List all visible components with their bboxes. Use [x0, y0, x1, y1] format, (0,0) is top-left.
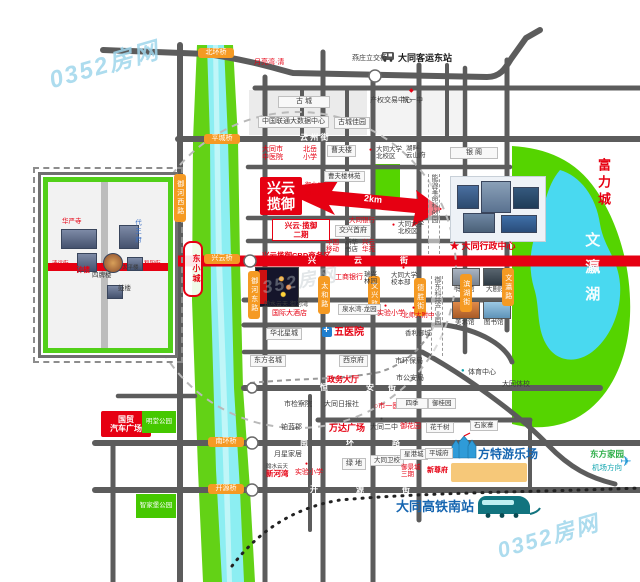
- map-label: 市公安局: [396, 375, 424, 383]
- map-label: 御桂园: [428, 398, 456, 409]
- map-label: 开: [310, 485, 318, 494]
- map-label: 实验小学: [295, 469, 323, 477]
- map-label: 大同卫校: [370, 455, 404, 466]
- map-label: 兴云 华苑: [362, 239, 375, 254]
- map-label: 清远街: [52, 261, 69, 267]
- map-label: 曹夫楼: [327, 145, 356, 157]
- map-label: 街: [400, 256, 408, 265]
- map-label: 大同大学 北校区: [398, 221, 424, 236]
- lake-label: 文瀛湖: [583, 232, 600, 313]
- admin-center-buildings: [450, 176, 546, 242]
- poi-dot-icon: ●: [369, 148, 372, 154]
- distance-label: 2km: [364, 193, 383, 205]
- map-label: 云: [354, 256, 362, 265]
- map-label: 星港城: [400, 449, 428, 460]
- project-phase2: 兴云·揽御 二期: [272, 219, 330, 241]
- hsr-station-label: 大同高铁南站: [396, 500, 474, 515]
- map-label: 四牌楼: [92, 272, 112, 279]
- map-label: 东方名城: [250, 355, 286, 367]
- map-label: 新河湾: [266, 470, 289, 479]
- road-tag: 御河西路: [174, 174, 186, 222]
- poi-dot-icon: ●: [392, 223, 395, 229]
- sipailou-icon: [103, 253, 123, 273]
- map-label: 国际大酒店: [272, 310, 307, 318]
- map-label: 太平楼: [122, 265, 139, 271]
- map-label: 万达广场: [329, 423, 365, 433]
- map-label: 南: [300, 438, 308, 447]
- map-label: 大同大学 北校区: [376, 146, 402, 161]
- sport-icon: ●: [461, 368, 465, 375]
- huayan-temple-icon: [61, 229, 97, 249]
- map-label: 大同大学 校本部: [391, 272, 417, 287]
- map-label: 街: [402, 485, 410, 494]
- map-label: 花千树: [426, 422, 454, 433]
- map-label: 智家堡公园: [136, 494, 176, 518]
- map-label: 华北星城: [266, 328, 302, 340]
- map-label: 御河苑: [305, 192, 323, 199]
- road-tag: 文瀛路: [502, 268, 514, 306]
- poi-dot-icon: ●: [380, 417, 383, 423]
- poi-dot-icon: ●: [402, 266, 405, 272]
- admin-center-label: ★ 大同行政中心: [450, 241, 516, 251]
- map-label: 古 城: [278, 96, 330, 108]
- map-label: 东小城: [183, 241, 203, 297]
- map-label: 华严寺: [62, 218, 82, 225]
- map-label: 工商银行: [335, 274, 363, 282]
- map-label: 富力城: [595, 158, 610, 209]
- map-label: 曹夫楼林苑: [324, 171, 365, 182]
- map-label: 铂蓝郡: [281, 424, 302, 432]
- fantawild-label: 方特游乐场: [478, 448, 538, 462]
- map-label: 燕庄立交桥: [352, 55, 387, 63]
- map-label: 西京府: [339, 355, 368, 367]
- map-label: 钟楼: [76, 267, 90, 275]
- map-label: 图书馆: [484, 319, 504, 326]
- bridge-tag: 开源桥: [208, 484, 244, 494]
- hospital-cross-icon: [322, 327, 332, 337]
- map-label: 美术馆: [455, 319, 475, 326]
- project-cbd: 兴云揽御CBD商务区: [262, 252, 331, 261]
- map-label: 御水公元: [305, 183, 329, 190]
- map-label: 绿 地: [342, 458, 366, 470]
- map-label: 市检察院: [284, 401, 312, 409]
- map-label: 新华 书店: [345, 239, 358, 254]
- road-tag: 滨湖街: [460, 274, 472, 312]
- poi-dot-icon: ●: [384, 304, 387, 310]
- project-block: 兴云 揽御: [260, 177, 302, 215]
- road-tag: 太和路: [318, 276, 330, 314]
- map-label: 铁一中: [402, 97, 423, 105]
- bridge-tag: 平城桥: [204, 134, 240, 144]
- map-label: 月亮湾·清: [254, 59, 284, 67]
- map-label: 大同银行: [349, 217, 375, 224]
- map-label: 安: [366, 383, 374, 392]
- map-label: 古城佳园: [334, 117, 370, 129]
- map-label: 实验小学: [377, 310, 405, 318]
- bus-station-label: 大同客运东站: [398, 53, 452, 63]
- map-label: 能源革命科创园: [428, 174, 440, 254]
- map-label: 北岳 小学: [303, 146, 317, 162]
- map-label: 街: [388, 383, 396, 392]
- map-label: 新尊府: [427, 467, 448, 475]
- bridge-tag: 南环桥: [208, 437, 244, 447]
- map-label: 恒: [320, 383, 328, 392]
- map-label: 中国 移动: [326, 239, 339, 254]
- fantawild-area-block: [451, 463, 527, 482]
- map-label: 机场方向: [592, 464, 622, 473]
- map-label: 明堂公园: [142, 411, 176, 433]
- map-label: 和阳街: [144, 261, 161, 267]
- poi-dot-icon: ●: [305, 462, 308, 468]
- map-label: 石家寨: [470, 420, 498, 431]
- bridge-tag: 北环桥: [198, 48, 234, 58]
- map-label: 大同日报社: [324, 401, 359, 409]
- castle-icon: [452, 433, 476, 458]
- map-label: 翰水云天·御河湾: [264, 302, 308, 309]
- map-label: 交兴首府: [335, 225, 371, 237]
- map-label: 平城府: [425, 448, 453, 459]
- map-label: 大同二中: [370, 424, 398, 432]
- map-label: 路: [392, 438, 400, 447]
- poi-dot-icon: ●: [412, 306, 415, 312]
- road-name-yunzhou: 云 州 街: [300, 133, 328, 142]
- plane-icon: ✈: [620, 453, 632, 469]
- road-tag: 御河东路: [248, 271, 260, 319]
- map-label: 鼓楼: [118, 285, 131, 292]
- map-label: 泉水湾·龙园: [338, 304, 381, 315]
- school-icon: ◆: [409, 88, 414, 95]
- map-label: 五医院: [334, 327, 364, 339]
- map-label: 体育中心: [468, 369, 496, 377]
- map-label: 湖畔· 云山府: [406, 145, 426, 160]
- map-label: 香利御城: [405, 330, 431, 337]
- map-label: 北师大附中: [402, 312, 435, 319]
- map-label: 御景城 三期: [401, 464, 421, 479]
- map-label: 政务大厅: [327, 375, 359, 384]
- map-label: 东方家园: [590, 450, 624, 460]
- map-label: 源: [356, 485, 364, 494]
- map-label: 银 阁: [450, 147, 498, 159]
- map-label: 兴: [308, 256, 316, 265]
- map-label: 市环保局: [395, 358, 423, 366]
- train-icon: [478, 496, 540, 518]
- map-label: 环: [346, 438, 354, 447]
- map-label: 瑞兴 林园: [364, 271, 377, 286]
- map-label: 四季: [396, 398, 428, 409]
- map-label: 大同市 中医院: [262, 146, 283, 162]
- bridge-tag: 兴云桥: [204, 254, 240, 264]
- map-canvas: 0352房网0352房网0352房网燕庄立交桥大同客运东站月亮湾·清古 城产权交…: [0, 0, 640, 582]
- map-label: 月星家居: [274, 451, 302, 459]
- map-label: 代王府: [133, 219, 140, 245]
- map-label: 中国联通大数据中心: [258, 116, 329, 128]
- map-label: 大同体校: [502, 381, 530, 389]
- map-label: 御花园: [400, 423, 421, 431]
